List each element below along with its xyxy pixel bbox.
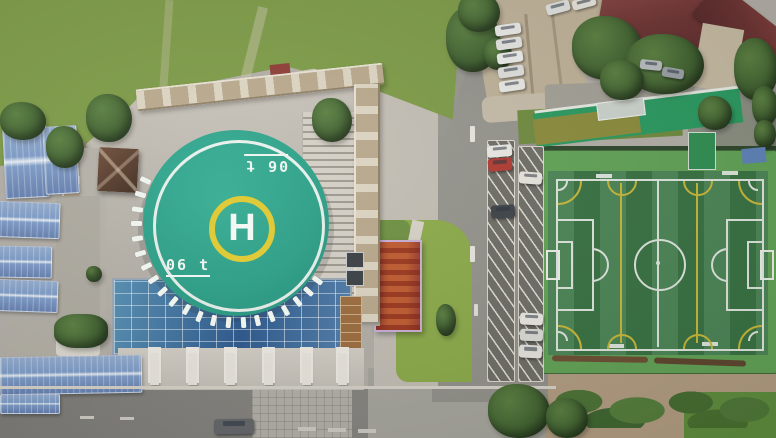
helipad-tick	[226, 317, 232, 328]
helipad-h-marking: H	[228, 209, 255, 247]
helipad-weight-marking-south: 06 t	[166, 256, 210, 277]
helipad-tick	[241, 317, 247, 328]
helipad-center-ring: H	[209, 196, 275, 262]
aerial-photo-stage: H 06 t 06 t	[0, 0, 776, 438]
helipad-tick	[131, 221, 142, 226]
lighting-overlay	[0, 0, 776, 438]
helipad-weight-marking-north: 06 t	[244, 154, 288, 175]
